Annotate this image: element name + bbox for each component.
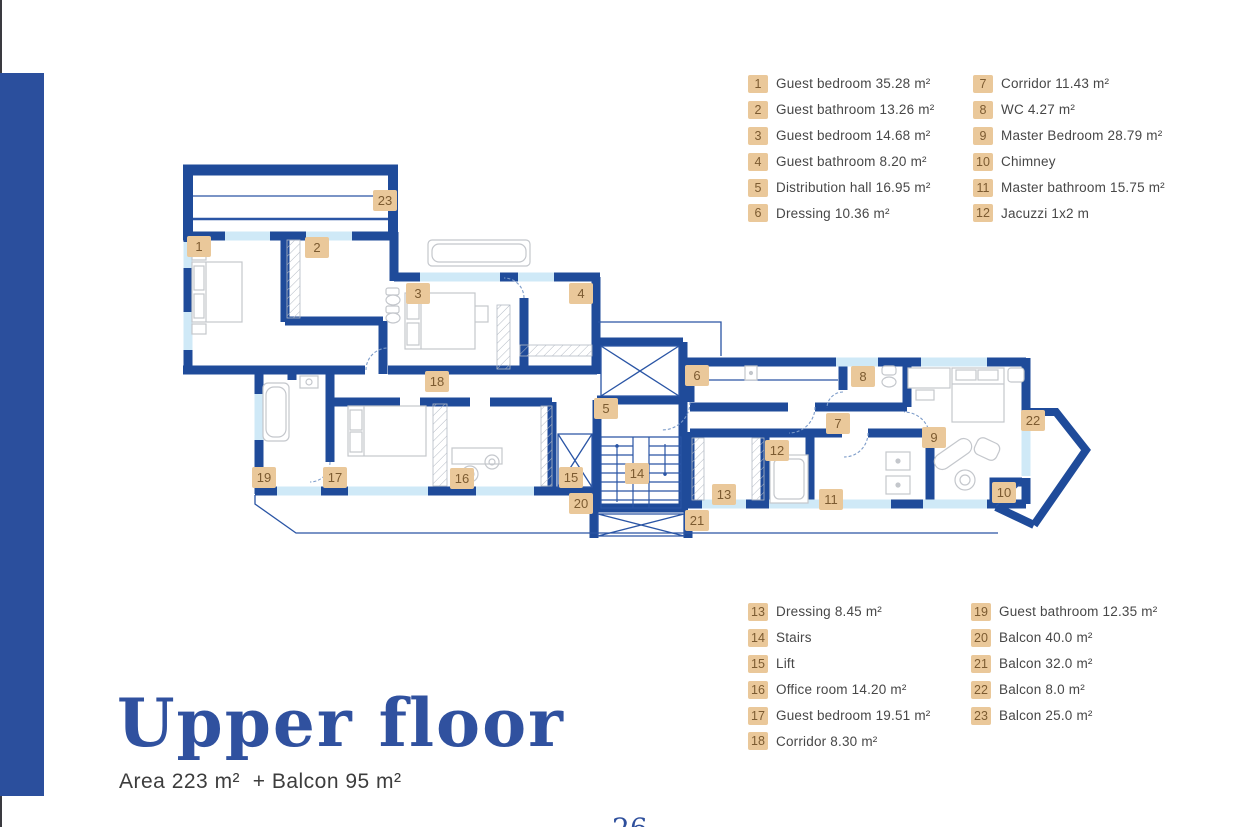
legend-item-number: 22: [971, 681, 991, 699]
legend-item-number: 15: [748, 655, 768, 673]
legend-item-number: 12: [973, 204, 993, 222]
legend-item-label: Guest bathroom 12.35 m²: [999, 604, 1157, 619]
legend-item-number: 19: [971, 603, 991, 621]
plan-badge: 15: [559, 467, 583, 488]
legend-item: 5Distribution hall 16.95 m²: [748, 175, 934, 201]
plan-badge: 11: [819, 489, 843, 510]
legend-item-label: Chimney: [1001, 154, 1056, 169]
plan-badge: 3: [406, 283, 430, 304]
legend-item-number: 7: [973, 75, 993, 93]
legend-item-number: 23: [971, 707, 991, 725]
plan-badge: 19: [252, 467, 276, 488]
legend-top-col1: 1Guest bedroom 35.28 m²2Guest bathroom 1…: [748, 71, 934, 226]
plan-badge: 13: [712, 484, 736, 505]
page-title: Upper floor: [117, 690, 565, 756]
plan-badge: 17: [323, 467, 347, 488]
legend-item-number: 3: [748, 127, 768, 145]
plan-badge: 20: [569, 493, 593, 514]
legend-item: 16Office room 14.20 m²: [748, 677, 930, 703]
legend-item-number: 17: [748, 707, 768, 725]
legend-item: 23Balcon 25.0 m²: [971, 703, 1157, 729]
legend-item: 18Corridor 8.30 m²: [748, 728, 930, 754]
legend-item-number: 9: [973, 127, 993, 145]
plan-badge: 16: [450, 468, 474, 489]
legend-item-label: Distribution hall 16.95 m²: [776, 180, 931, 195]
legend-item: 4Guest bathroom 8.20 m²: [748, 149, 934, 175]
brochure-page: 1234567891011121314151617181920212223 1G…: [0, 0, 1253, 827]
plan-badge: 22: [1021, 410, 1045, 431]
legend-item-number: 14: [748, 629, 768, 647]
legend-item-number: 2: [748, 101, 768, 119]
legend-item-label: Balcon 32.0 m²: [999, 656, 1093, 671]
plan-badge: 18: [425, 371, 449, 392]
legend-item: 3Guest bedroom 14.68 m²: [748, 123, 934, 149]
legend-item: 11Master bathroom 15.75 m²: [973, 175, 1165, 201]
legend-item: 12Jacuzzi 1x2 m: [973, 200, 1165, 226]
legend-item-label: Balcon 8.0 m²: [999, 682, 1085, 697]
legend-item-number: 16: [748, 681, 768, 699]
legend-item: 15Lift: [748, 651, 930, 677]
legend-item-label: Dressing 8.45 m²: [776, 604, 882, 619]
plan-badge: 2: [305, 237, 329, 258]
plan-badge: 12: [765, 440, 789, 461]
legend-item-label: Master Bedroom 28.79 m²: [1001, 128, 1162, 143]
legend-bottom-col2: 19Guest bathroom 12.35 m²20Balcon 40.0 m…: [971, 599, 1157, 728]
legend-item: 7Corridor 11.43 m²: [973, 71, 1165, 97]
legend-item: 13Dressing 8.45 m²: [748, 599, 930, 625]
legend-item-label: Corridor 8.30 m²: [776, 734, 877, 749]
legend-item-label: Lift: [776, 656, 795, 671]
void-x-box: [601, 346, 679, 396]
plan-badge: 1: [187, 236, 211, 257]
plan-badge: 6: [685, 365, 709, 386]
legend-item: 14Stairs: [748, 625, 930, 651]
legend-item-label: Balcon 25.0 m²: [999, 708, 1093, 723]
legend-item-label: Guest bedroom 19.51 m²: [776, 708, 930, 723]
legend-item-label: Balcon 40.0 m²: [999, 630, 1093, 645]
plan-badge: 8: [851, 366, 875, 387]
legend-item: 2Guest bathroom 13.26 m²: [748, 97, 934, 123]
legend-item-label: Guest bathroom 13.26 m²: [776, 102, 934, 117]
legend-item-number: 18: [748, 732, 768, 750]
plan-badge: 14: [625, 463, 649, 484]
legend-item-label: Stairs: [776, 630, 812, 645]
legend-top-col2: 7Corridor 11.43 m²8WC 4.27 m²9Master Bed…: [973, 71, 1165, 226]
plan-badge: 21: [685, 510, 709, 531]
plan-badge: 4: [569, 283, 593, 304]
legend-item-number: 10: [973, 153, 993, 171]
legend-item: 19Guest bathroom 12.35 m²: [971, 599, 1157, 625]
legend-item: 6Dressing 10.36 m²: [748, 200, 934, 226]
legend-item-number: 4: [748, 153, 768, 171]
page-subtitle: Area 223 m² + Balcon 95 m²: [119, 770, 565, 794]
title-block: Upper floor Area 223 m² + Balcon 95 m²: [117, 690, 565, 794]
plan-badge: 9: [922, 427, 946, 448]
legend-item-label: Jacuzzi 1x2 m: [1001, 206, 1089, 221]
legend-bottom-col1: 13Dressing 8.45 m²14Stairs15Lift16Office…: [748, 599, 930, 754]
legend-item: 1Guest bedroom 35.28 m²: [748, 71, 934, 97]
legend-item-number: 6: [748, 204, 768, 222]
balcony-railing-top: [183, 165, 398, 240]
page-number: 26: [612, 812, 648, 827]
legend-item: 22Balcon 8.0 m²: [971, 677, 1157, 703]
legend-item: 17Guest bedroom 19.51 m²: [748, 703, 930, 729]
plan-badge: 5: [594, 398, 618, 419]
legend-item-label: Office room 14.20 m²: [776, 682, 907, 697]
legend-item: 21Balcon 32.0 m²: [971, 651, 1157, 677]
legend-item: 9Master Bedroom 28.79 m²: [973, 123, 1165, 149]
legend-item-label: Guest bedroom 14.68 m²: [776, 128, 930, 143]
legend-item-number: 8: [973, 101, 993, 119]
legend-item-label: Guest bathroom 8.20 m²: [776, 154, 927, 169]
legend-item-label: Master bathroom 15.75 m²: [1001, 180, 1165, 195]
legend-item-number: 21: [971, 655, 991, 673]
legend-item: 10Chimney: [973, 149, 1165, 175]
legend-item: 8WC 4.27 m²: [973, 97, 1165, 123]
plan-badge: 7: [826, 413, 850, 434]
legend-item-number: 20: [971, 629, 991, 647]
legend-item-number: 11: [973, 179, 993, 197]
legend-item: 20Balcon 40.0 m²: [971, 625, 1157, 651]
legend-item-number: 1: [748, 75, 768, 93]
legend-item-label: Dressing 10.36 m²: [776, 206, 890, 221]
legend-item-label: Corridor 11.43 m²: [1001, 76, 1109, 91]
plan-badge: 23: [373, 190, 397, 211]
legend-item-label: Guest bedroom 35.28 m²: [776, 76, 930, 91]
legend-item-number: 13: [748, 603, 768, 621]
legend-item-number: 5: [748, 179, 768, 197]
legend-item-label: WC 4.27 m²: [1001, 102, 1075, 117]
plan-badge: 10: [992, 482, 1016, 503]
